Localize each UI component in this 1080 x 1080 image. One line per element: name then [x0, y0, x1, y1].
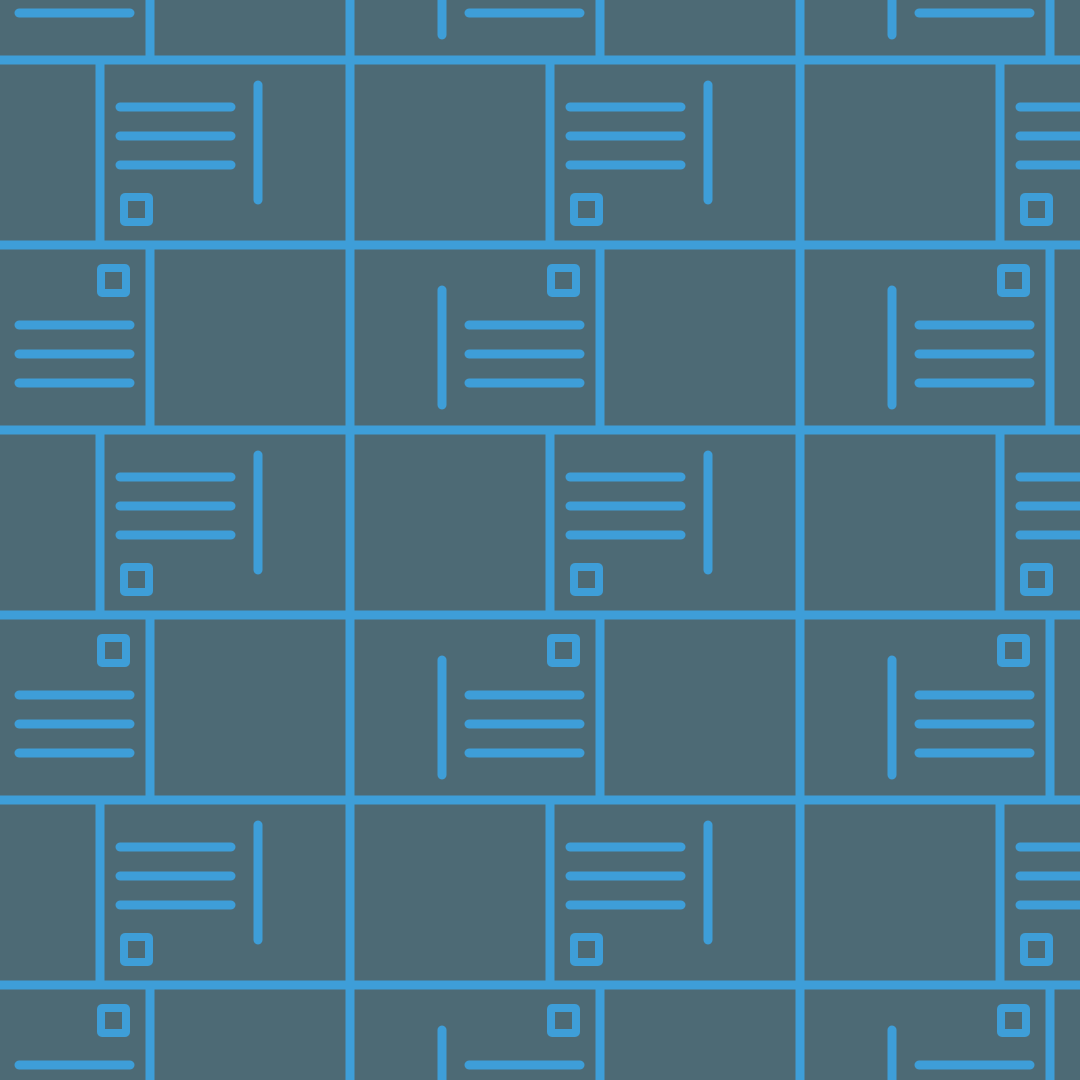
- stamp-icon: [574, 937, 599, 962]
- postcard-pattern-wallpaper: [0, 0, 1080, 1080]
- stamp-icon: [124, 937, 149, 962]
- stamp-icon: [124, 567, 149, 592]
- stamp-icon: [1024, 567, 1049, 592]
- stamp-icon: [101, 268, 126, 293]
- postcard-pattern-svg: [0, 0, 1080, 1080]
- stamp-icon: [551, 638, 576, 663]
- stamp-icon: [101, 1008, 126, 1033]
- stamp-icon: [1024, 937, 1049, 962]
- stamp-icon: [574, 197, 599, 222]
- stamp-icon: [1001, 268, 1026, 293]
- stamp-icon: [1024, 197, 1049, 222]
- stamp-icon: [101, 638, 126, 663]
- stamp-icon: [551, 268, 576, 293]
- stamp-icon: [1001, 638, 1026, 663]
- stamp-icon: [1001, 1008, 1026, 1033]
- stamp-icon: [574, 567, 599, 592]
- stamp-icon: [551, 1008, 576, 1033]
- stamp-icon: [124, 197, 149, 222]
